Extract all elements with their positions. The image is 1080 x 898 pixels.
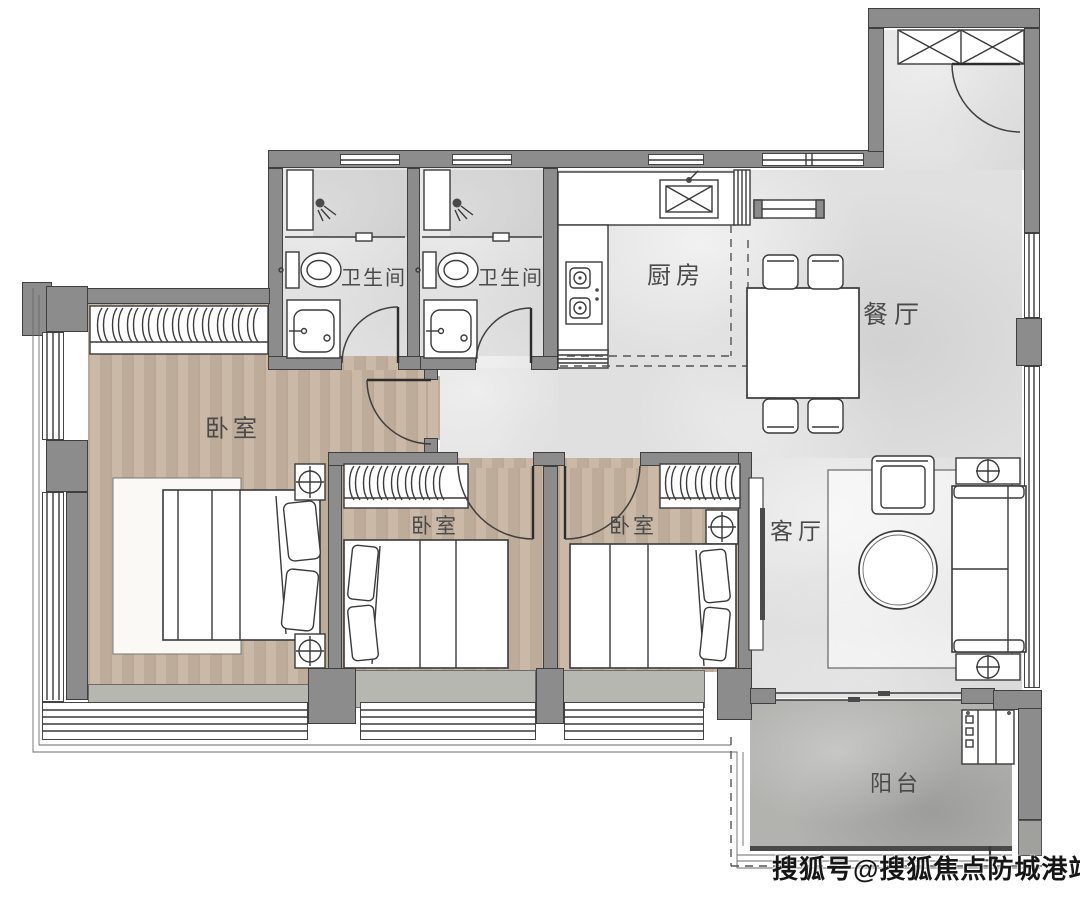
entry-door [952,64,1020,132]
toilet-icon [416,252,478,288]
bedroom-3-bed [570,544,736,668]
dining-chair [763,399,798,433]
floor-plan-canvas: 卫生间 卫生间 厨房 餐厅 卧室 卧室 卧室 客厅 阳台 搜狐号@搜狐焦点防城港… [0,0,1080,898]
room-label-bedroom-2: 卧室 [411,510,459,540]
room-label-bathroom-2: 卫生间 [478,262,544,291]
shoe-bench [754,200,824,218]
pillow-icon [283,500,321,561]
nightstand-lamp-icon [295,634,325,668]
dining-chair [763,255,798,289]
master-wardrobe [90,306,268,354]
room-label-master-bedroom: 卧室 [205,409,261,444]
room-label-bathroom-1: 卫生间 [341,262,407,291]
plan-linework [0,0,1080,898]
bedroom-2-door [458,466,533,539]
sink-icon [424,300,477,358]
side-table-lamp-icon [956,654,1020,680]
tv-icon [760,508,765,620]
room-label-dining: 餐厅 [863,295,925,331]
sink-icon [287,300,340,358]
washing-machine-icon [962,710,1014,764]
side-table-lamp-icon [956,458,1020,484]
shower-icon [453,199,462,208]
bathroom-1-door [342,307,398,363]
pillow-icon [699,607,730,661]
pillow-icon [699,549,730,603]
nightstand-lamp-icon [706,510,738,544]
bedroom-2-bed [344,540,508,668]
dining-chair [808,255,843,289]
pillow-icon [347,605,379,661]
watermark: 搜狐号@搜狐焦点防城港站 [772,849,1080,886]
coffee-table [859,531,937,609]
balcony-sliding-door [776,691,961,702]
room-label-kitchen: 厨房 [647,256,705,291]
bathroom-2-door [476,308,531,363]
armchair [872,456,934,514]
dining-chair [808,399,843,433]
toilet-icon [279,252,341,288]
bedroom-2-wardrobe [344,464,468,508]
master-bed [113,478,321,654]
dining-table [747,255,859,433]
room-label-living-room: 客厅 [770,512,826,546]
tv-console [749,478,765,650]
sofa [952,458,1026,680]
entry-cabinet-icon [898,30,1024,64]
room-label-balcony: 阳台 [870,766,922,798]
pillow-icon [281,568,319,631]
fridge-shaft-icon [734,170,750,225]
bedroom-3-wardrobe [660,464,740,508]
pillow-icon [347,545,379,601]
room-label-bedroom-3: 卧室 [609,510,657,540]
nightstand-lamp-icon [295,464,325,500]
stove-icon [566,262,602,324]
master-door [367,380,431,444]
shower-icon [316,199,325,208]
